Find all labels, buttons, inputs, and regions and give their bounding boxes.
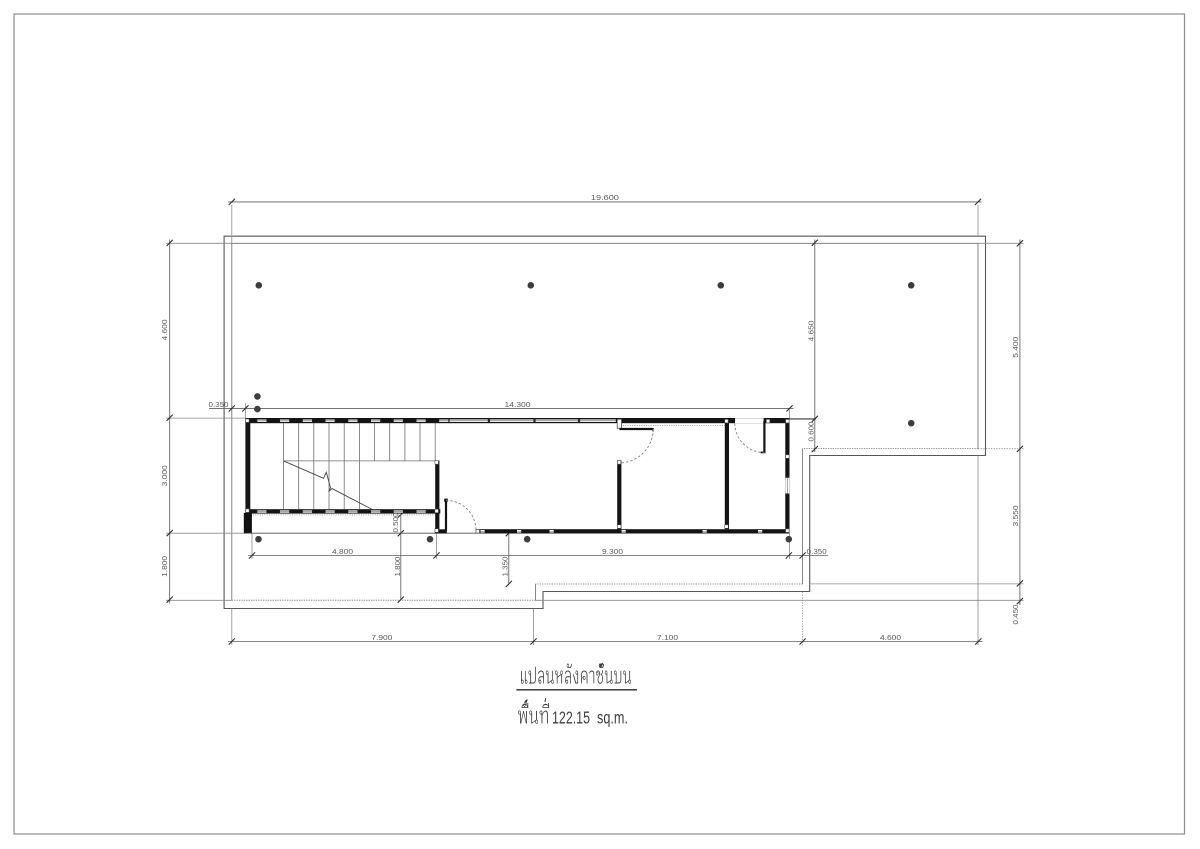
svg-text:3.550: 3.550 [1011,506,1020,527]
svg-text:19.600: 19.600 [591,193,619,202]
svg-text:14.300: 14.300 [505,400,531,409]
svg-text:0.600: 0.600 [807,422,816,442]
svg-text:9.300: 9.300 [602,547,623,556]
svg-text:4.650: 4.650 [807,321,816,342]
svg-text:0.500: 0.500 [391,513,400,533]
svg-text:0.350: 0.350 [807,547,827,556]
svg-text:0.450: 0.450 [1011,605,1020,625]
svg-text:4.800: 4.800 [332,547,353,556]
svg-text:5.400: 5.400 [1011,337,1020,358]
svg-text:122.15: 122.15 [552,708,590,728]
svg-text:4.600: 4.600 [880,633,901,642]
svg-text:1.350: 1.350 [501,557,510,577]
svg-text:3.000: 3.000 [160,465,169,486]
svg-text:4.600: 4.600 [160,320,169,341]
svg-text:7.900: 7.900 [371,633,392,642]
svg-text:7.100: 7.100 [657,633,678,642]
svg-text:1.800: 1.800 [393,557,402,577]
svg-text:0.350: 0.350 [209,400,229,409]
svg-text:1.800: 1.800 [160,556,169,577]
svg-text:sq.m.: sq.m. [597,708,628,728]
